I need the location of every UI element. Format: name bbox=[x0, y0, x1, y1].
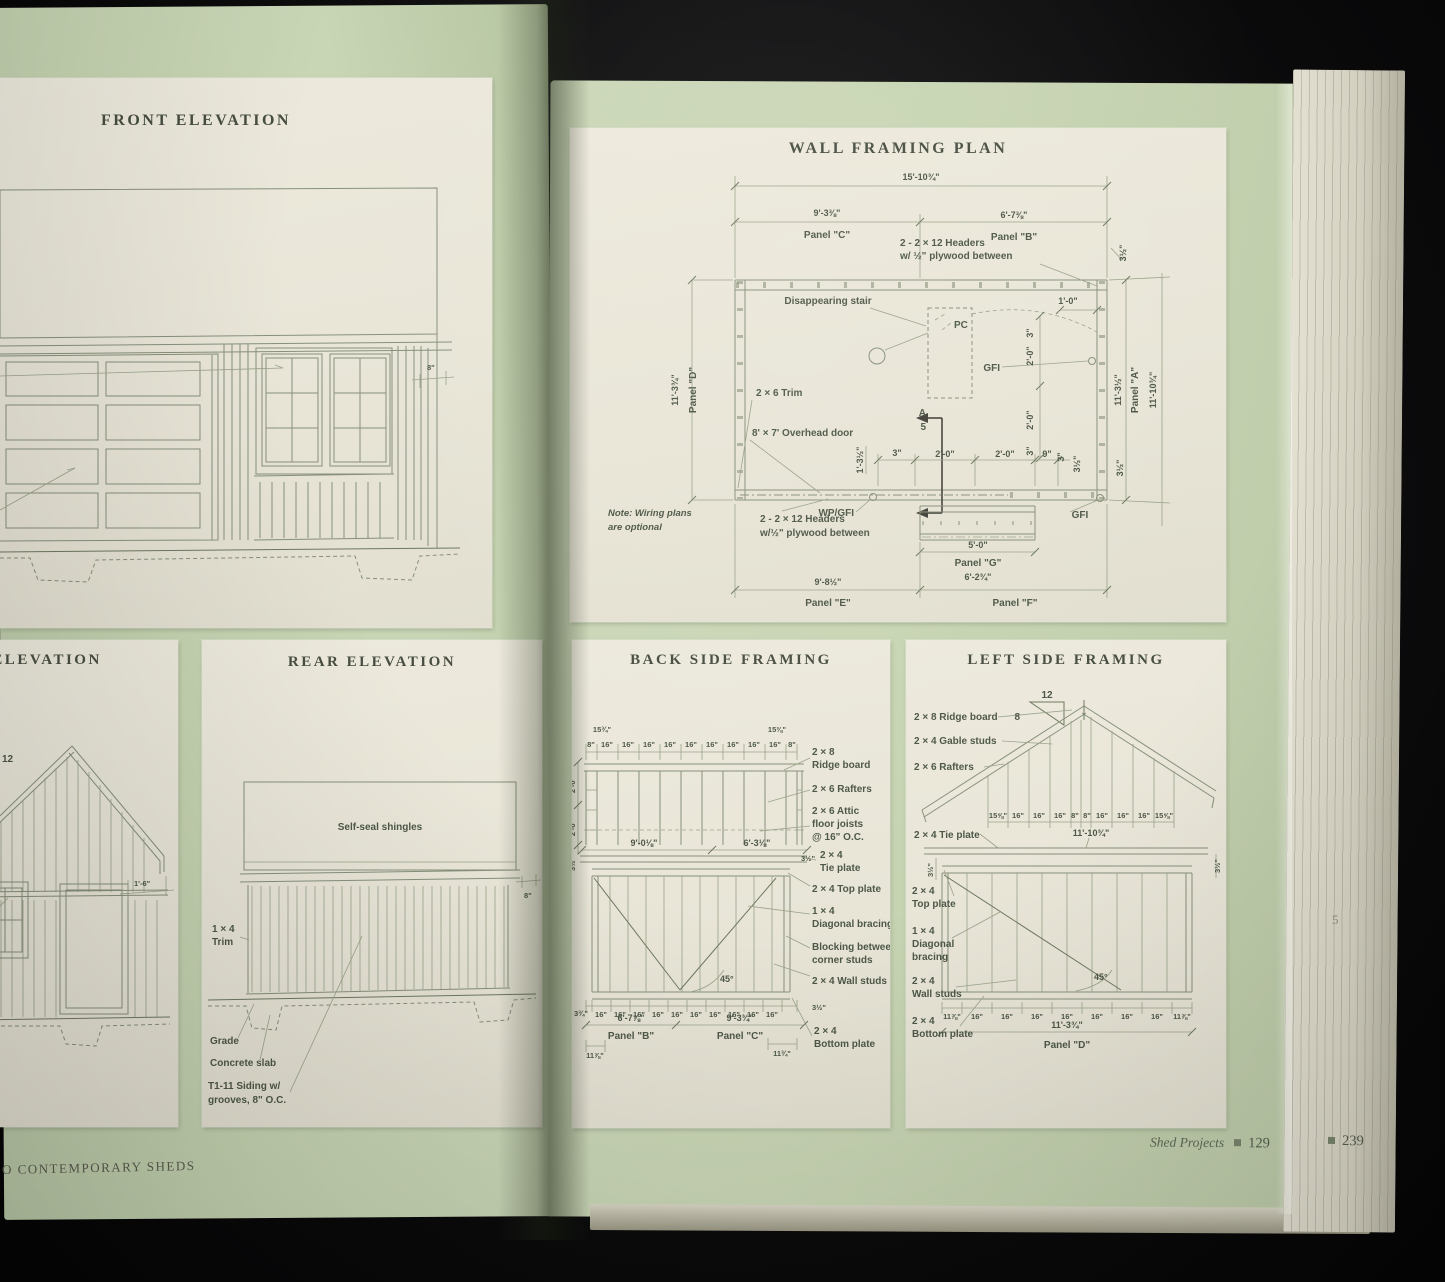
label: 8' × 7' Overhead door bbox=[752, 428, 853, 439]
wall-framing-plan-panel: WALL FRAMING PLAN bbox=[570, 128, 1226, 622]
drawing-lines bbox=[0, 746, 174, 1046]
slope-label: 8 bbox=[1014, 712, 1020, 723]
label: Wall studs bbox=[912, 989, 962, 1000]
panel-label: Panel "D" bbox=[688, 367, 699, 413]
dim-label: 16" bbox=[664, 740, 676, 749]
footer-bullet-icon bbox=[1328, 1137, 1335, 1144]
footer-bullet-icon bbox=[1234, 1139, 1241, 1146]
note: are optional bbox=[608, 522, 662, 533]
page-bottom-edges bbox=[590, 1204, 1370, 1234]
dim-label: 9'-3⅜" bbox=[814, 208, 841, 218]
dim-label: 16" bbox=[685, 740, 697, 749]
dim-label: 3½" bbox=[812, 1003, 826, 1012]
panel-label: Panel "F" bbox=[992, 598, 1037, 609]
side-elevation-drawing: 12 1'-6" bbox=[0, 640, 178, 1127]
dim-label: 16" bbox=[601, 740, 613, 749]
label: Trim bbox=[212, 937, 233, 948]
back-side-framing-drawing: 15¾" 15⅜" 8" 16" 16" 16" 16" 16" 16" 16"… bbox=[572, 640, 890, 1128]
label: bracing bbox=[912, 952, 948, 963]
label: 2 × 4 bbox=[814, 1026, 837, 1037]
dim-label: 11⅞" bbox=[943, 1012, 961, 1021]
dim-label: 8" bbox=[524, 891, 532, 900]
dim-label: 11⅞" bbox=[586, 1051, 604, 1060]
dim-label: 2'-0" bbox=[1025, 346, 1035, 365]
drawing-lines bbox=[574, 744, 816, 1052]
label: 1 × 4 bbox=[912, 926, 935, 937]
label: 2 - 2 × 12 Headers bbox=[760, 514, 845, 525]
label: 2 × 6 Rafters bbox=[812, 784, 872, 795]
dim-label: 3½" bbox=[572, 857, 577, 871]
label: Bottom plate bbox=[814, 1039, 876, 1050]
label: 2 × 4 Gable studs bbox=[914, 736, 997, 747]
right-page-footer: Shed Projects129 bbox=[1150, 1134, 1270, 1153]
label: w/½" plywood between bbox=[759, 528, 870, 539]
label: 2 × 6 Rafters bbox=[914, 762, 974, 773]
left-side-framing-panel: LEFT SIDE FRAMING bbox=[906, 640, 1226, 1128]
dim-label: 16" bbox=[727, 740, 739, 749]
page-stack-edge bbox=[1283, 70, 1405, 1233]
dim-label: 15⅝" bbox=[1155, 811, 1174, 820]
slope-label: 12 bbox=[2, 754, 14, 765]
front-elevation-panel: FRONT ELEVATION bbox=[0, 78, 492, 628]
panel-label: Panel "B" bbox=[991, 232, 1037, 243]
label: 1 × 4 bbox=[212, 924, 235, 935]
label: Tie plate bbox=[820, 863, 861, 874]
label: Bottom plate bbox=[912, 1029, 974, 1040]
panel-label: Panel "D" bbox=[1044, 1040, 1090, 1051]
dim-label: 11'-10¾" bbox=[1148, 372, 1158, 408]
angle-label: 45° bbox=[720, 974, 734, 984]
dim-label: 6'-2¾" bbox=[965, 572, 992, 582]
left-side-framing-drawing: 12 8 2 × 8 Ridge board 2 × 4 Gable studs… bbox=[906, 640, 1226, 1128]
dim-label: 3½" bbox=[1115, 460, 1125, 477]
section-marker-label: 5 bbox=[920, 422, 926, 433]
page-number: 239 bbox=[1342, 1133, 1364, 1149]
label: grooves, 8" O.C. bbox=[208, 1095, 286, 1106]
label: 2 × 8 Ridge board bbox=[914, 712, 998, 723]
label: Concrete slab bbox=[210, 1058, 276, 1069]
dim-label: 2'-0" bbox=[995, 449, 1014, 459]
dim-label: 6'-3⅛" bbox=[744, 838, 771, 848]
dim-label: 3½" bbox=[1118, 245, 1128, 262]
panel-label: Panel "G" bbox=[955, 558, 1002, 569]
label: w/ ½" plywood between bbox=[899, 251, 1013, 262]
label: 1 × 4 bbox=[812, 906, 835, 917]
panel-label: Panel "A" bbox=[1130, 367, 1141, 413]
dim-label: 3½" bbox=[801, 854, 815, 863]
dim-label: 16" bbox=[971, 1012, 983, 1021]
dim-label: 16" bbox=[1117, 811, 1129, 820]
label: 2 × 4 Tie plate bbox=[914, 830, 980, 841]
dim-label: 11'-3½" bbox=[1113, 374, 1123, 405]
label: T1-11 Siding w/ bbox=[208, 1081, 280, 1092]
dim-label: 3¾" bbox=[574, 1009, 588, 1018]
dim-label: 3" bbox=[1025, 328, 1035, 337]
label: Diagonal bracing bbox=[812, 919, 890, 930]
dim-label: 16" bbox=[1031, 1012, 1043, 1021]
dim-label: 16" bbox=[1001, 1012, 1013, 1021]
front-elevation-drawing: 8" bbox=[0, 78, 492, 628]
label: GFI bbox=[1072, 510, 1089, 521]
dim-label: 16" bbox=[709, 1010, 721, 1019]
dim-label: 1'-3½" bbox=[855, 447, 865, 474]
panel-label: Panel "E" bbox=[805, 598, 851, 609]
dim-label: 9" bbox=[1042, 449, 1051, 459]
dim-label: 11'-10¾" bbox=[1073, 828, 1109, 838]
dim-label: 9'-0⅛" bbox=[631, 838, 658, 848]
dim-label: 6'-7⅜" bbox=[1001, 210, 1028, 220]
dim-label: 2'-0" bbox=[572, 819, 577, 836]
label: 2 × 4 Top plate bbox=[812, 884, 881, 895]
dim-label: 6'-7⅞" bbox=[618, 1013, 645, 1023]
dim-label: 16" bbox=[622, 740, 634, 749]
section-marker-label: A bbox=[919, 408, 926, 419]
label: 2 × 4 Wall studs bbox=[812, 976, 887, 987]
dim-label: 8" bbox=[1083, 811, 1091, 820]
dim-label: 9'-8½" bbox=[815, 577, 842, 587]
drawing-lines bbox=[0, 188, 460, 582]
angle-label: 45° bbox=[1094, 972, 1108, 982]
label: Top plate bbox=[912, 899, 956, 910]
dim-label: 11'-3¾" bbox=[670, 374, 680, 405]
label: 2 × 4 bbox=[912, 886, 935, 897]
dim-label: 3½" bbox=[1213, 859, 1222, 873]
dim-label: 16" bbox=[1138, 811, 1150, 820]
dim-label: 15⅜" bbox=[768, 725, 787, 734]
wall-framing-plan-drawing: 15'-10¾" 9'-3⅜" 6'-7⅜" Panel "C" Panel "… bbox=[570, 128, 1226, 622]
page-number: 129 bbox=[1248, 1135, 1270, 1151]
label: 2 × 4 bbox=[912, 976, 935, 987]
label: Disappearing stair bbox=[784, 296, 871, 307]
rear-elevation-drawing: Self-seal shingles 8" 1 × 4 Trim Grade C… bbox=[202, 640, 542, 1127]
label: 2 × 8 bbox=[812, 747, 835, 758]
dim-label: 2'-0" bbox=[1025, 410, 1035, 429]
book-photo: FRONT ELEVATION bbox=[0, 0, 1445, 1282]
dim-label: 16" bbox=[1033, 811, 1045, 820]
dim-label: 11⅞" bbox=[1173, 1012, 1191, 1021]
label: Grade bbox=[210, 1036, 239, 1047]
footer-section-title: Shed Projects bbox=[1150, 1135, 1224, 1151]
label: 2 × 4 bbox=[912, 1016, 935, 1027]
label: corner studs bbox=[812, 955, 873, 966]
label: @ 16" O.C. bbox=[812, 832, 864, 843]
dim-label: 15⅝" bbox=[989, 811, 1008, 820]
rear-elevation-panel: REAR ELEVATION bbox=[202, 640, 542, 1127]
dim-label: 15'-10¾" bbox=[903, 172, 940, 182]
label: GFI bbox=[983, 363, 1000, 374]
panel-label: Panel "C" bbox=[804, 230, 850, 241]
label: 2 - 2 × 12 Headers bbox=[900, 238, 985, 249]
page-curl-highlight bbox=[1276, 84, 1292, 1214]
dim-label: 16" bbox=[1121, 1012, 1133, 1021]
label: Blocking between bbox=[812, 942, 890, 953]
dim-label: 1'-0" bbox=[1058, 296, 1077, 306]
dim-label: 3" bbox=[1025, 446, 1035, 455]
dim-label: 16" bbox=[748, 740, 760, 749]
label: Diagonal bbox=[912, 939, 954, 950]
dim-label: 3½" bbox=[926, 863, 935, 877]
dim-label: 16" bbox=[652, 1010, 664, 1019]
back-side-framing-panel: BACK SIDE FRAMING bbox=[572, 640, 890, 1128]
dim-label: 16" bbox=[769, 740, 781, 749]
side-elevation-panel: DE ELEVATION bbox=[0, 640, 178, 1127]
dim-label: 3" bbox=[1056, 452, 1066, 461]
dim-label: 16" bbox=[1012, 811, 1024, 820]
panel-label: Panel "B" bbox=[608, 1031, 654, 1042]
dim-label: 2'-0" bbox=[572, 776, 577, 793]
dim-label: 16" bbox=[1054, 811, 1066, 820]
dim-label: 16" bbox=[671, 1010, 683, 1019]
dim-label: 3" bbox=[892, 448, 901, 458]
label: 2 × 6 Trim bbox=[756, 388, 803, 399]
dim-label: 16" bbox=[1096, 811, 1108, 820]
dim-label: 16" bbox=[1151, 1012, 1163, 1021]
stacked-page-mark: 5 bbox=[1332, 912, 1339, 928]
label: PC bbox=[954, 320, 968, 331]
dim-label: 16" bbox=[706, 740, 718, 749]
dim-label: 1'-6" bbox=[134, 879, 151, 888]
dim-label: 11¾" bbox=[773, 1049, 791, 1058]
panel-label: Panel "C" bbox=[717, 1031, 763, 1042]
slope-label: 12 bbox=[1041, 690, 1053, 701]
dim-label: 16" bbox=[766, 1010, 778, 1019]
dim-label: 5'-0" bbox=[968, 540, 987, 550]
stacked-page-number: 239 bbox=[1318, 1132, 1364, 1150]
dim-label: 16" bbox=[690, 1010, 702, 1019]
dim-label: 16" bbox=[1091, 1012, 1103, 1021]
label: Ridge board bbox=[812, 760, 870, 771]
dim-label: 16" bbox=[595, 1010, 607, 1019]
label: 2 × 6 Attic bbox=[812, 806, 860, 817]
note: Note: Wiring plans bbox=[608, 508, 692, 519]
dim-label: 8" bbox=[427, 363, 435, 372]
label: 2 × 4 bbox=[820, 850, 843, 861]
dim-label: 11'-3¾" bbox=[1051, 1020, 1082, 1030]
dim-label: 8" bbox=[788, 740, 796, 749]
dim-label: 16" bbox=[643, 740, 655, 749]
label: Self-seal shingles bbox=[338, 822, 423, 833]
dim-label: 15¾" bbox=[593, 725, 612, 734]
dim-label: 8" bbox=[587, 740, 595, 749]
dim-label: 8" bbox=[1071, 811, 1079, 820]
dim-label: 3½" bbox=[1072, 456, 1082, 473]
label: floor joists bbox=[812, 819, 864, 830]
drawing-lines bbox=[922, 700, 1216, 1036]
dim-label: 2'-0" bbox=[935, 449, 954, 459]
dim-label: 9'-3¾" bbox=[727, 1013, 754, 1023]
